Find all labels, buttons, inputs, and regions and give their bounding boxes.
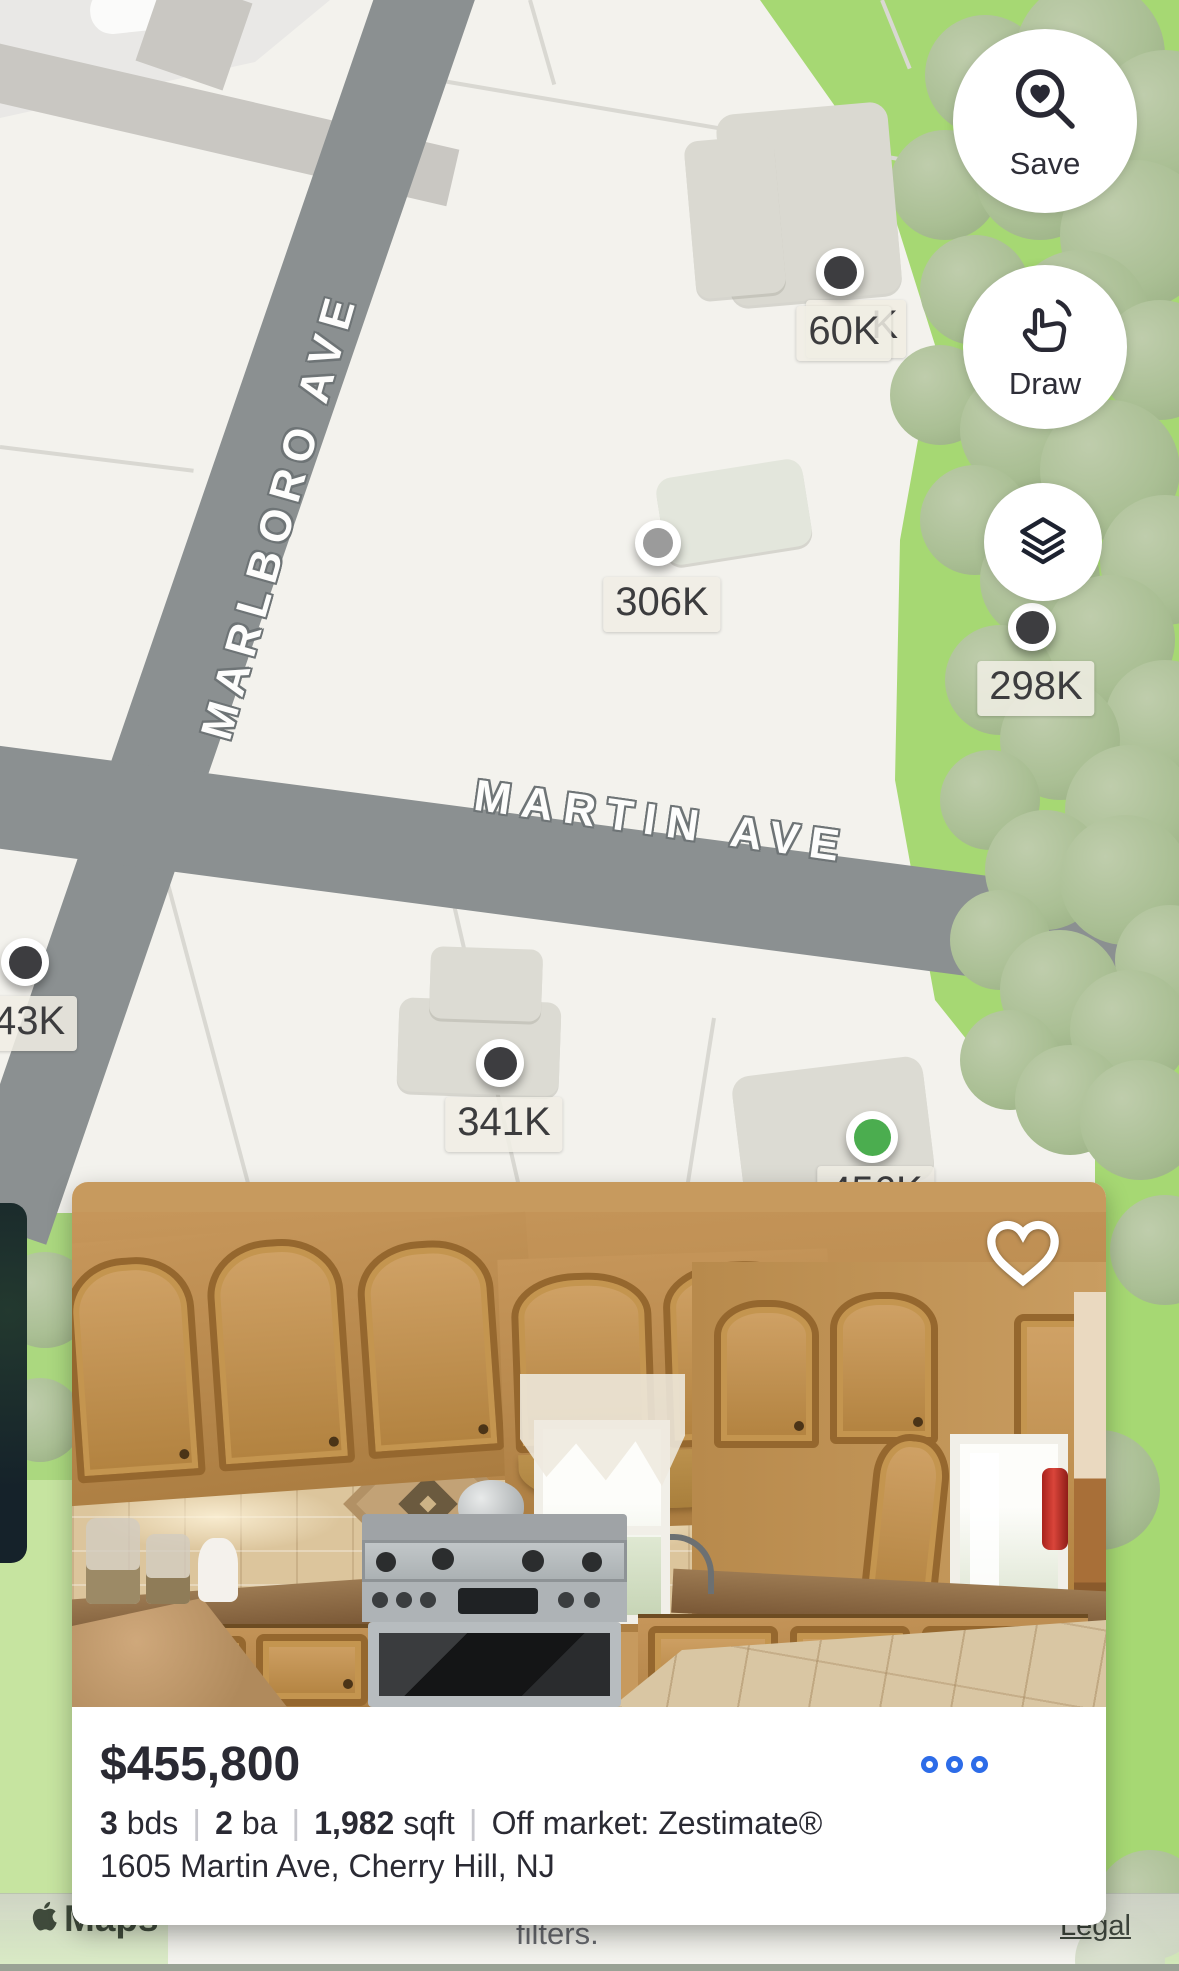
save-search-button[interactable]: Save bbox=[953, 29, 1137, 213]
divider: | bbox=[291, 1804, 300, 1843]
stove bbox=[362, 1514, 627, 1707]
counter-jar bbox=[86, 1518, 140, 1604]
rooster-figurine bbox=[198, 1538, 238, 1602]
search-heart-icon bbox=[1006, 61, 1084, 144]
price-marker-dot-60k[interactable] bbox=[816, 248, 864, 296]
price-label-341k[interactable]: 341K bbox=[445, 1097, 562, 1152]
price-marker-dot-306k[interactable] bbox=[635, 520, 681, 566]
price-marker-dot-43k[interactable] bbox=[1, 938, 49, 986]
layers-icon bbox=[1012, 509, 1074, 576]
marker-dot-fill bbox=[643, 528, 673, 558]
price-label-298k[interactable]: 298K bbox=[977, 661, 1094, 716]
zillow-map-screen: { "map": { "streets": { "marlboro": "MAR… bbox=[0, 0, 1179, 1971]
parcel-line bbox=[0, 445, 194, 473]
parcel-line bbox=[684, 1018, 716, 1196]
price-label-60k[interactable]: 60K bbox=[796, 306, 891, 361]
marker-dot-fill bbox=[1016, 611, 1049, 644]
marker-dot-fill bbox=[484, 1047, 517, 1080]
beds-value: 3 bbox=[100, 1805, 118, 1841]
marker-dot-fill bbox=[824, 256, 857, 289]
property-photo[interactable] bbox=[72, 1182, 1106, 1707]
map-layers-button[interactable] bbox=[984, 483, 1102, 601]
divider: | bbox=[469, 1804, 478, 1843]
favorite-heart-button[interactable] bbox=[984, 1216, 1062, 1290]
property-card[interactable]: $455,800 3 bds | 2 ba | 1,982 sqft | Off… bbox=[72, 1182, 1106, 1925]
price-marker-dot-456k[interactable] bbox=[846, 1111, 898, 1163]
listing-address: 1605 Martin Ave, Cherry Hill, NJ bbox=[100, 1848, 555, 1885]
draw-region-button[interactable]: Draw bbox=[963, 265, 1127, 429]
parcel-line bbox=[160, 861, 251, 1186]
previous-card-peek[interactable] bbox=[0, 1203, 27, 1563]
parcel-line bbox=[528, 0, 556, 85]
listing-price: $455,800 bbox=[100, 1737, 300, 1792]
counter-jar bbox=[146, 1534, 190, 1604]
price-label-43k[interactable]: 43K bbox=[0, 996, 77, 1051]
beds-unit: bds bbox=[127, 1805, 179, 1841]
more-options-button[interactable] bbox=[921, 1756, 988, 1773]
marker-dot-fill bbox=[854, 1119, 891, 1156]
map-building bbox=[429, 946, 543, 1022]
fire-extinguisher bbox=[1042, 1468, 1068, 1550]
marker-dot-fill bbox=[9, 946, 42, 979]
map-building bbox=[683, 134, 786, 299]
baths-value: 2 bbox=[215, 1805, 233, 1841]
draw-button-label: Draw bbox=[1009, 366, 1081, 402]
listing-status: Off market: Zestimate® bbox=[492, 1805, 823, 1842]
window-curtain bbox=[520, 1374, 685, 1486]
sqft-unit: sqft bbox=[403, 1805, 455, 1841]
apple-logo-icon bbox=[26, 1896, 60, 1941]
baths-unit: ba bbox=[242, 1805, 278, 1841]
price-label-306k[interactable]: 306K bbox=[603, 577, 720, 632]
price-marker-dot-341k[interactable] bbox=[476, 1039, 524, 1087]
screen-bottom-edge bbox=[0, 1964, 1179, 1971]
draw-hand-icon bbox=[1010, 293, 1080, 364]
price-marker-dot-298k[interactable] bbox=[1008, 603, 1056, 651]
listing-facts: 3 bds | 2 ba | 1,982 sqft | Off market: … bbox=[100, 1804, 822, 1843]
upper-cabinets-left bbox=[72, 1212, 544, 1506]
sqft-value: 1,982 bbox=[314, 1805, 394, 1841]
save-button-label: Save bbox=[1010, 146, 1081, 182]
divider: | bbox=[192, 1804, 201, 1843]
